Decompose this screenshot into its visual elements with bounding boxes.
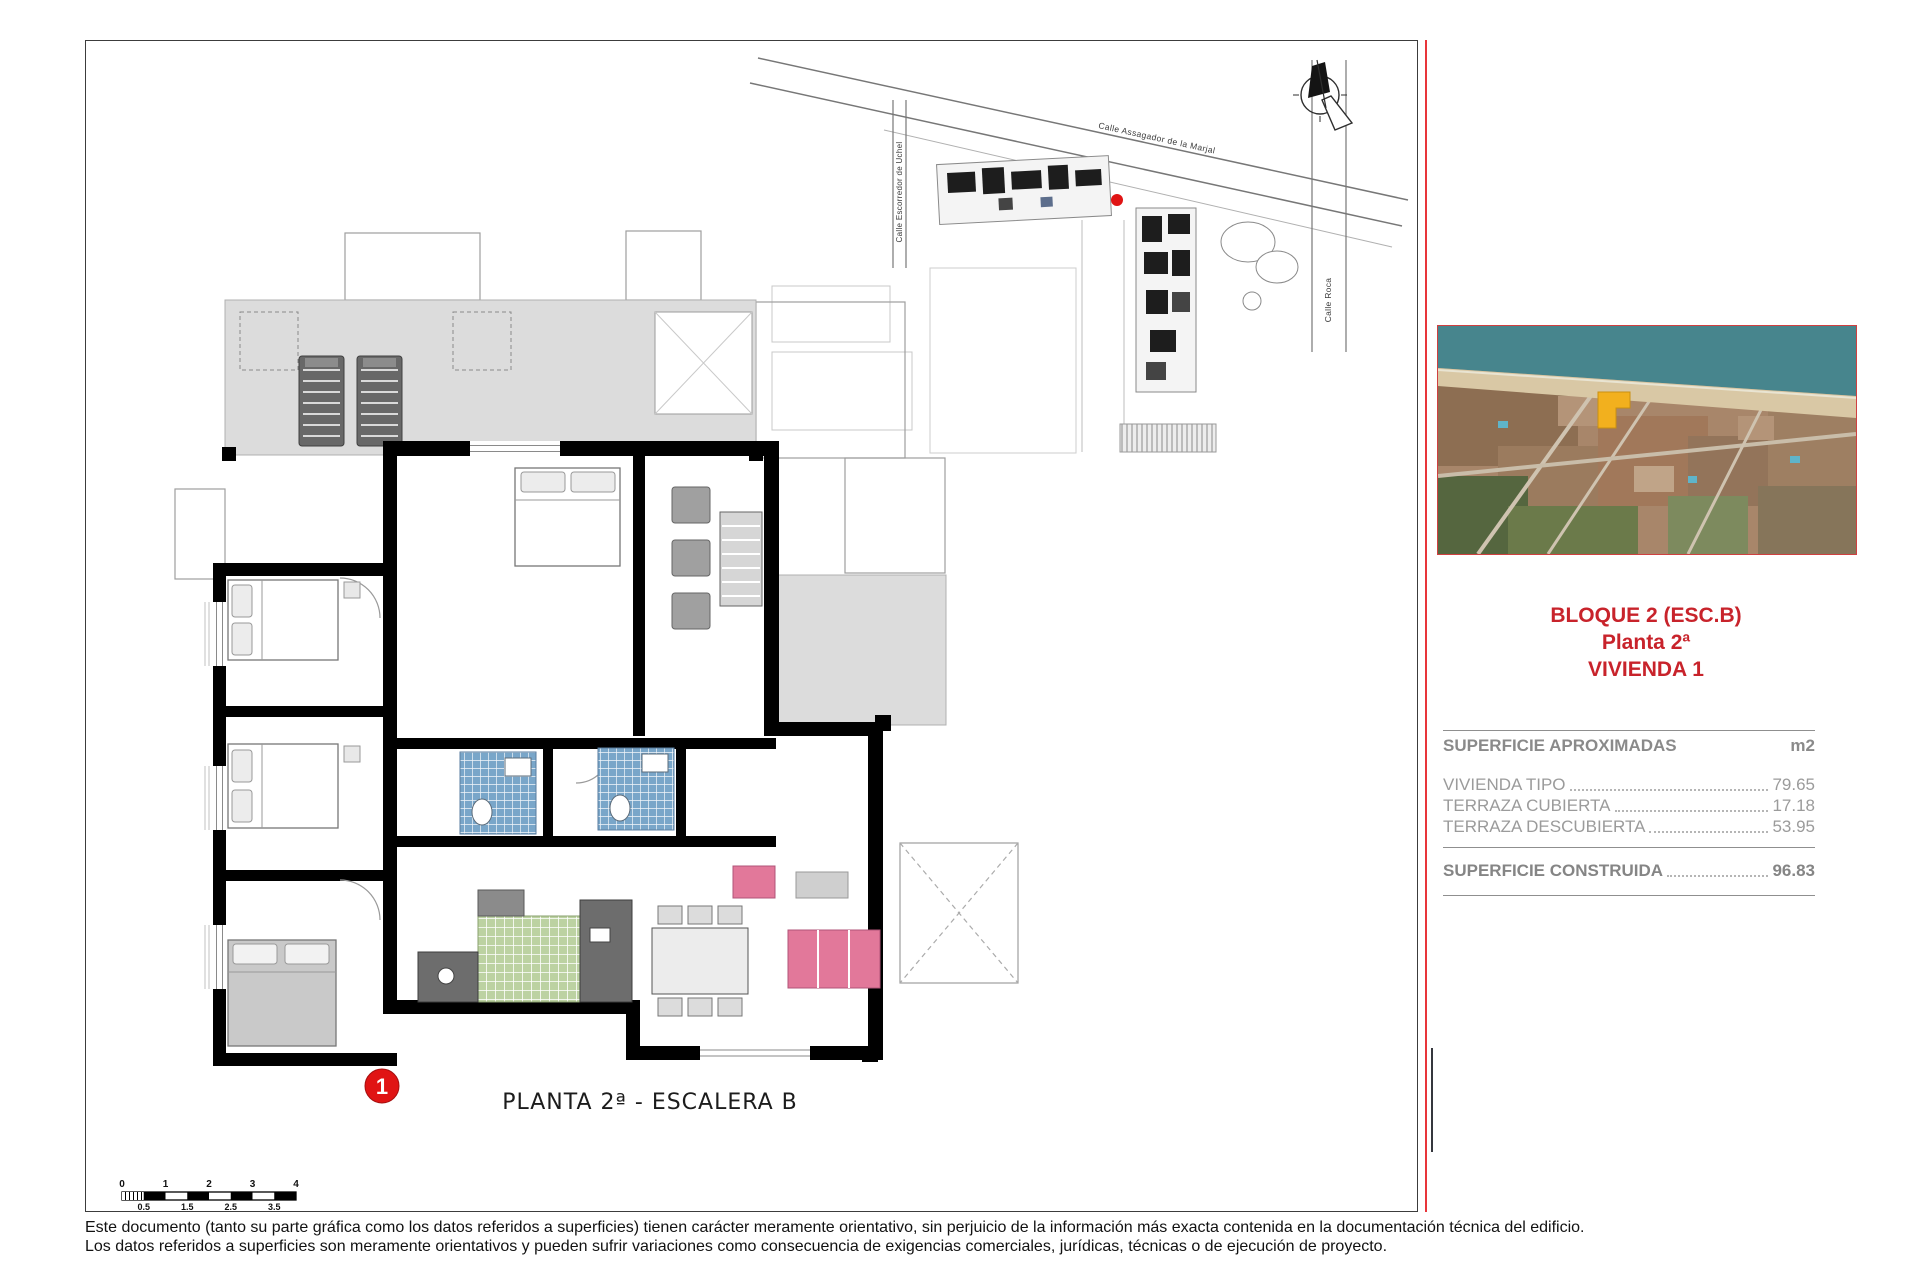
area-row: TERRAZA CUBIERTA 17.18 bbox=[1443, 795, 1815, 816]
svg-text:4: 4 bbox=[293, 1179, 299, 1190]
area-row: TERRAZA DESCUBIERTA 53.95 bbox=[1443, 816, 1815, 837]
pink-sofa bbox=[788, 930, 880, 988]
floor-plan: 1 bbox=[175, 231, 1018, 1103]
master-bed bbox=[515, 468, 620, 566]
bed-2 bbox=[228, 744, 338, 828]
table-rule-bottom bbox=[1443, 895, 1815, 896]
site-pool bbox=[1221, 222, 1298, 310]
total-value: 96.83 bbox=[1772, 860, 1815, 881]
unit-marker: 1 bbox=[365, 1069, 399, 1103]
street-label-top: Calle Assagador de la Marjal bbox=[1098, 120, 1217, 155]
area-row-value: 53.95 bbox=[1772, 816, 1815, 837]
compass-north-icon bbox=[1293, 60, 1352, 130]
site-plan: Calle Assagador de la Marjal Calle Escor… bbox=[750, 58, 1408, 453]
area-row-value: 79.65 bbox=[1772, 774, 1815, 795]
total-row: SUPERFICIE CONSTRUIDA 96.83 bbox=[1443, 848, 1815, 895]
plan-sheet: Calle Assagador de la Marjal Calle Escor… bbox=[0, 0, 1920, 1280]
svg-text:3.5: 3.5 bbox=[268, 1202, 281, 1212]
svg-text:2.5: 2.5 bbox=[224, 1202, 237, 1212]
area-row-value: 17.18 bbox=[1772, 795, 1815, 816]
dotted-leader bbox=[1667, 875, 1768, 877]
area-row: VIVIENDA TIPO 79.65 bbox=[1443, 774, 1815, 795]
site-location-dot bbox=[1111, 194, 1123, 206]
dotted-leader bbox=[1615, 810, 1769, 812]
svg-text:0: 0 bbox=[119, 1179, 125, 1190]
areas-header: SUPERFICIE APROXIMADAS bbox=[1443, 736, 1677, 756]
plan-caption: PLANTA 2ª - ESCALERA B bbox=[495, 1090, 805, 1115]
areas-unit-header: m2 bbox=[1790, 736, 1815, 756]
bed-3 bbox=[228, 940, 336, 1046]
disclaimer-line2: Los datos referidos a superficies son me… bbox=[85, 1237, 1885, 1256]
dotted-leader bbox=[1649, 831, 1768, 833]
panel-divider-dark bbox=[1431, 1048, 1433, 1152]
aerial-photo bbox=[1437, 325, 1857, 555]
title-block: BLOQUE 2 (ESC.B) Planta 2ª VIVIENDA 1 bbox=[1437, 602, 1855, 683]
panel-divider-red bbox=[1425, 40, 1427, 1212]
site-building-block1 bbox=[937, 156, 1112, 225]
area-row-label: TERRAZA CUBIERTA bbox=[1443, 795, 1611, 816]
scale-bar: 0 1 2 3 4 0.5 1.5 2.5 3.5 bbox=[119, 1179, 299, 1212]
svg-text:1: 1 bbox=[163, 1179, 169, 1190]
areas-table: SUPERFICIE APROXIMADAS m2 VIVIENDA TIPO … bbox=[1443, 730, 1815, 896]
svg-text:3: 3 bbox=[250, 1179, 256, 1190]
svg-text:2: 2 bbox=[206, 1179, 212, 1190]
bathrooms bbox=[460, 748, 674, 834]
area-row-label: VIVIENDA TIPO bbox=[1443, 774, 1566, 795]
unit-title: VIVIENDA 1 bbox=[1437, 656, 1855, 683]
aerial-photo-image bbox=[1438, 326, 1856, 554]
disclaimer-line1: Este documento (tanto su parte gráfica c… bbox=[85, 1218, 1885, 1237]
unit-marker-number: 1 bbox=[376, 1074, 388, 1099]
dotted-leader bbox=[1570, 789, 1769, 791]
rug bbox=[796, 872, 848, 898]
pink-armchair bbox=[733, 866, 775, 898]
street-label-right: Calle Roca bbox=[1323, 278, 1333, 323]
site-parking-hatch bbox=[1120, 424, 1216, 452]
street-label-left: Calle Escorredor de Uchel bbox=[895, 142, 904, 243]
floor-title: Planta 2ª bbox=[1437, 629, 1855, 656]
dining-set bbox=[652, 906, 748, 1016]
site-building-block2 bbox=[1136, 208, 1196, 392]
bed-1 bbox=[228, 580, 338, 660]
block-title: BLOQUE 2 (ESC.B) bbox=[1437, 602, 1855, 629]
total-label: SUPERFICIE CONSTRUIDA bbox=[1443, 860, 1663, 881]
svg-text:0.5: 0.5 bbox=[137, 1202, 150, 1212]
disclaimer: Este documento (tanto su parte gráfica c… bbox=[85, 1218, 1885, 1256]
kitchen bbox=[418, 890, 632, 1002]
area-row-label: TERRAZA DESCUBIERTA bbox=[1443, 816, 1645, 837]
svg-text:1.5: 1.5 bbox=[181, 1202, 194, 1212]
